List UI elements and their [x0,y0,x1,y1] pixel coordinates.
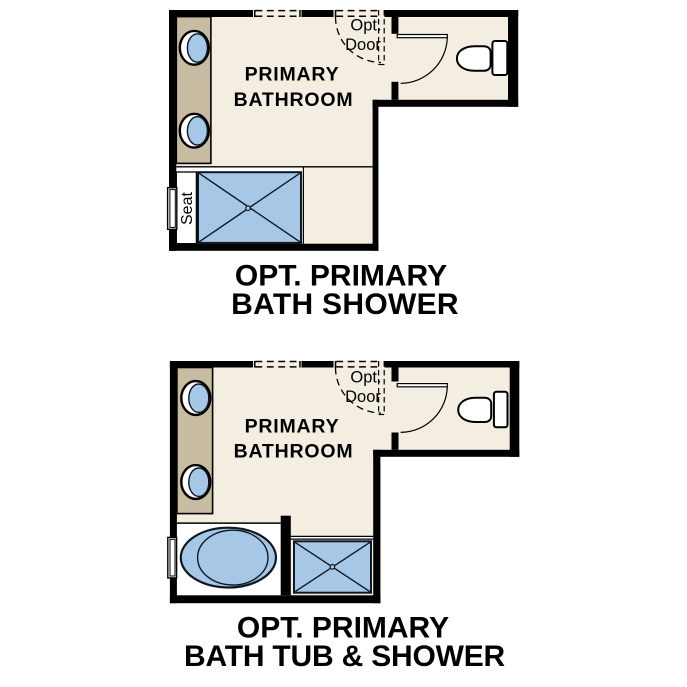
svg-text:Opt.: Opt. [350,368,381,386]
svg-text:BATH SHOWER: BATH SHOWER [231,288,459,321]
svg-text:PRIMARY: PRIMARY [245,63,340,85]
svg-text:Door: Door [345,388,381,406]
svg-text:Seat: Seat [179,192,196,225]
svg-text:Door: Door [345,36,381,54]
svg-text:PRIMARY: PRIMARY [245,415,340,437]
svg-text:BATH TUB & SHOWER: BATH TUB & SHOWER [184,640,506,673]
svg-text:BATHROOM: BATHROOM [234,441,354,463]
svg-text:BATHROOM: BATHROOM [234,89,354,111]
svg-text:Opt.: Opt. [350,16,381,34]
